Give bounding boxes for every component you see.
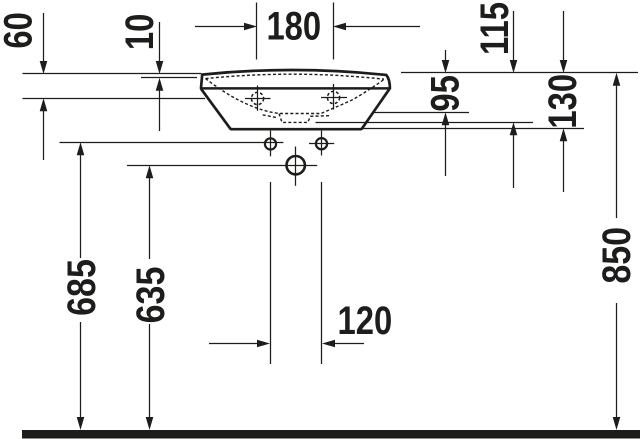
- svg-text:635: 635: [127, 267, 172, 324]
- svg-text:130: 130: [540, 74, 585, 129]
- svg-text:60: 60: [0, 12, 40, 48]
- svg-text:95: 95: [423, 75, 468, 111]
- svg-text:180: 180: [266, 3, 321, 48]
- svg-text:850: 850: [594, 227, 639, 284]
- svg-text:115: 115: [472, 2, 517, 55]
- svg-text:120: 120: [338, 298, 393, 343]
- svg-text:10: 10: [117, 14, 162, 50]
- svg-text:685: 685: [58, 259, 103, 316]
